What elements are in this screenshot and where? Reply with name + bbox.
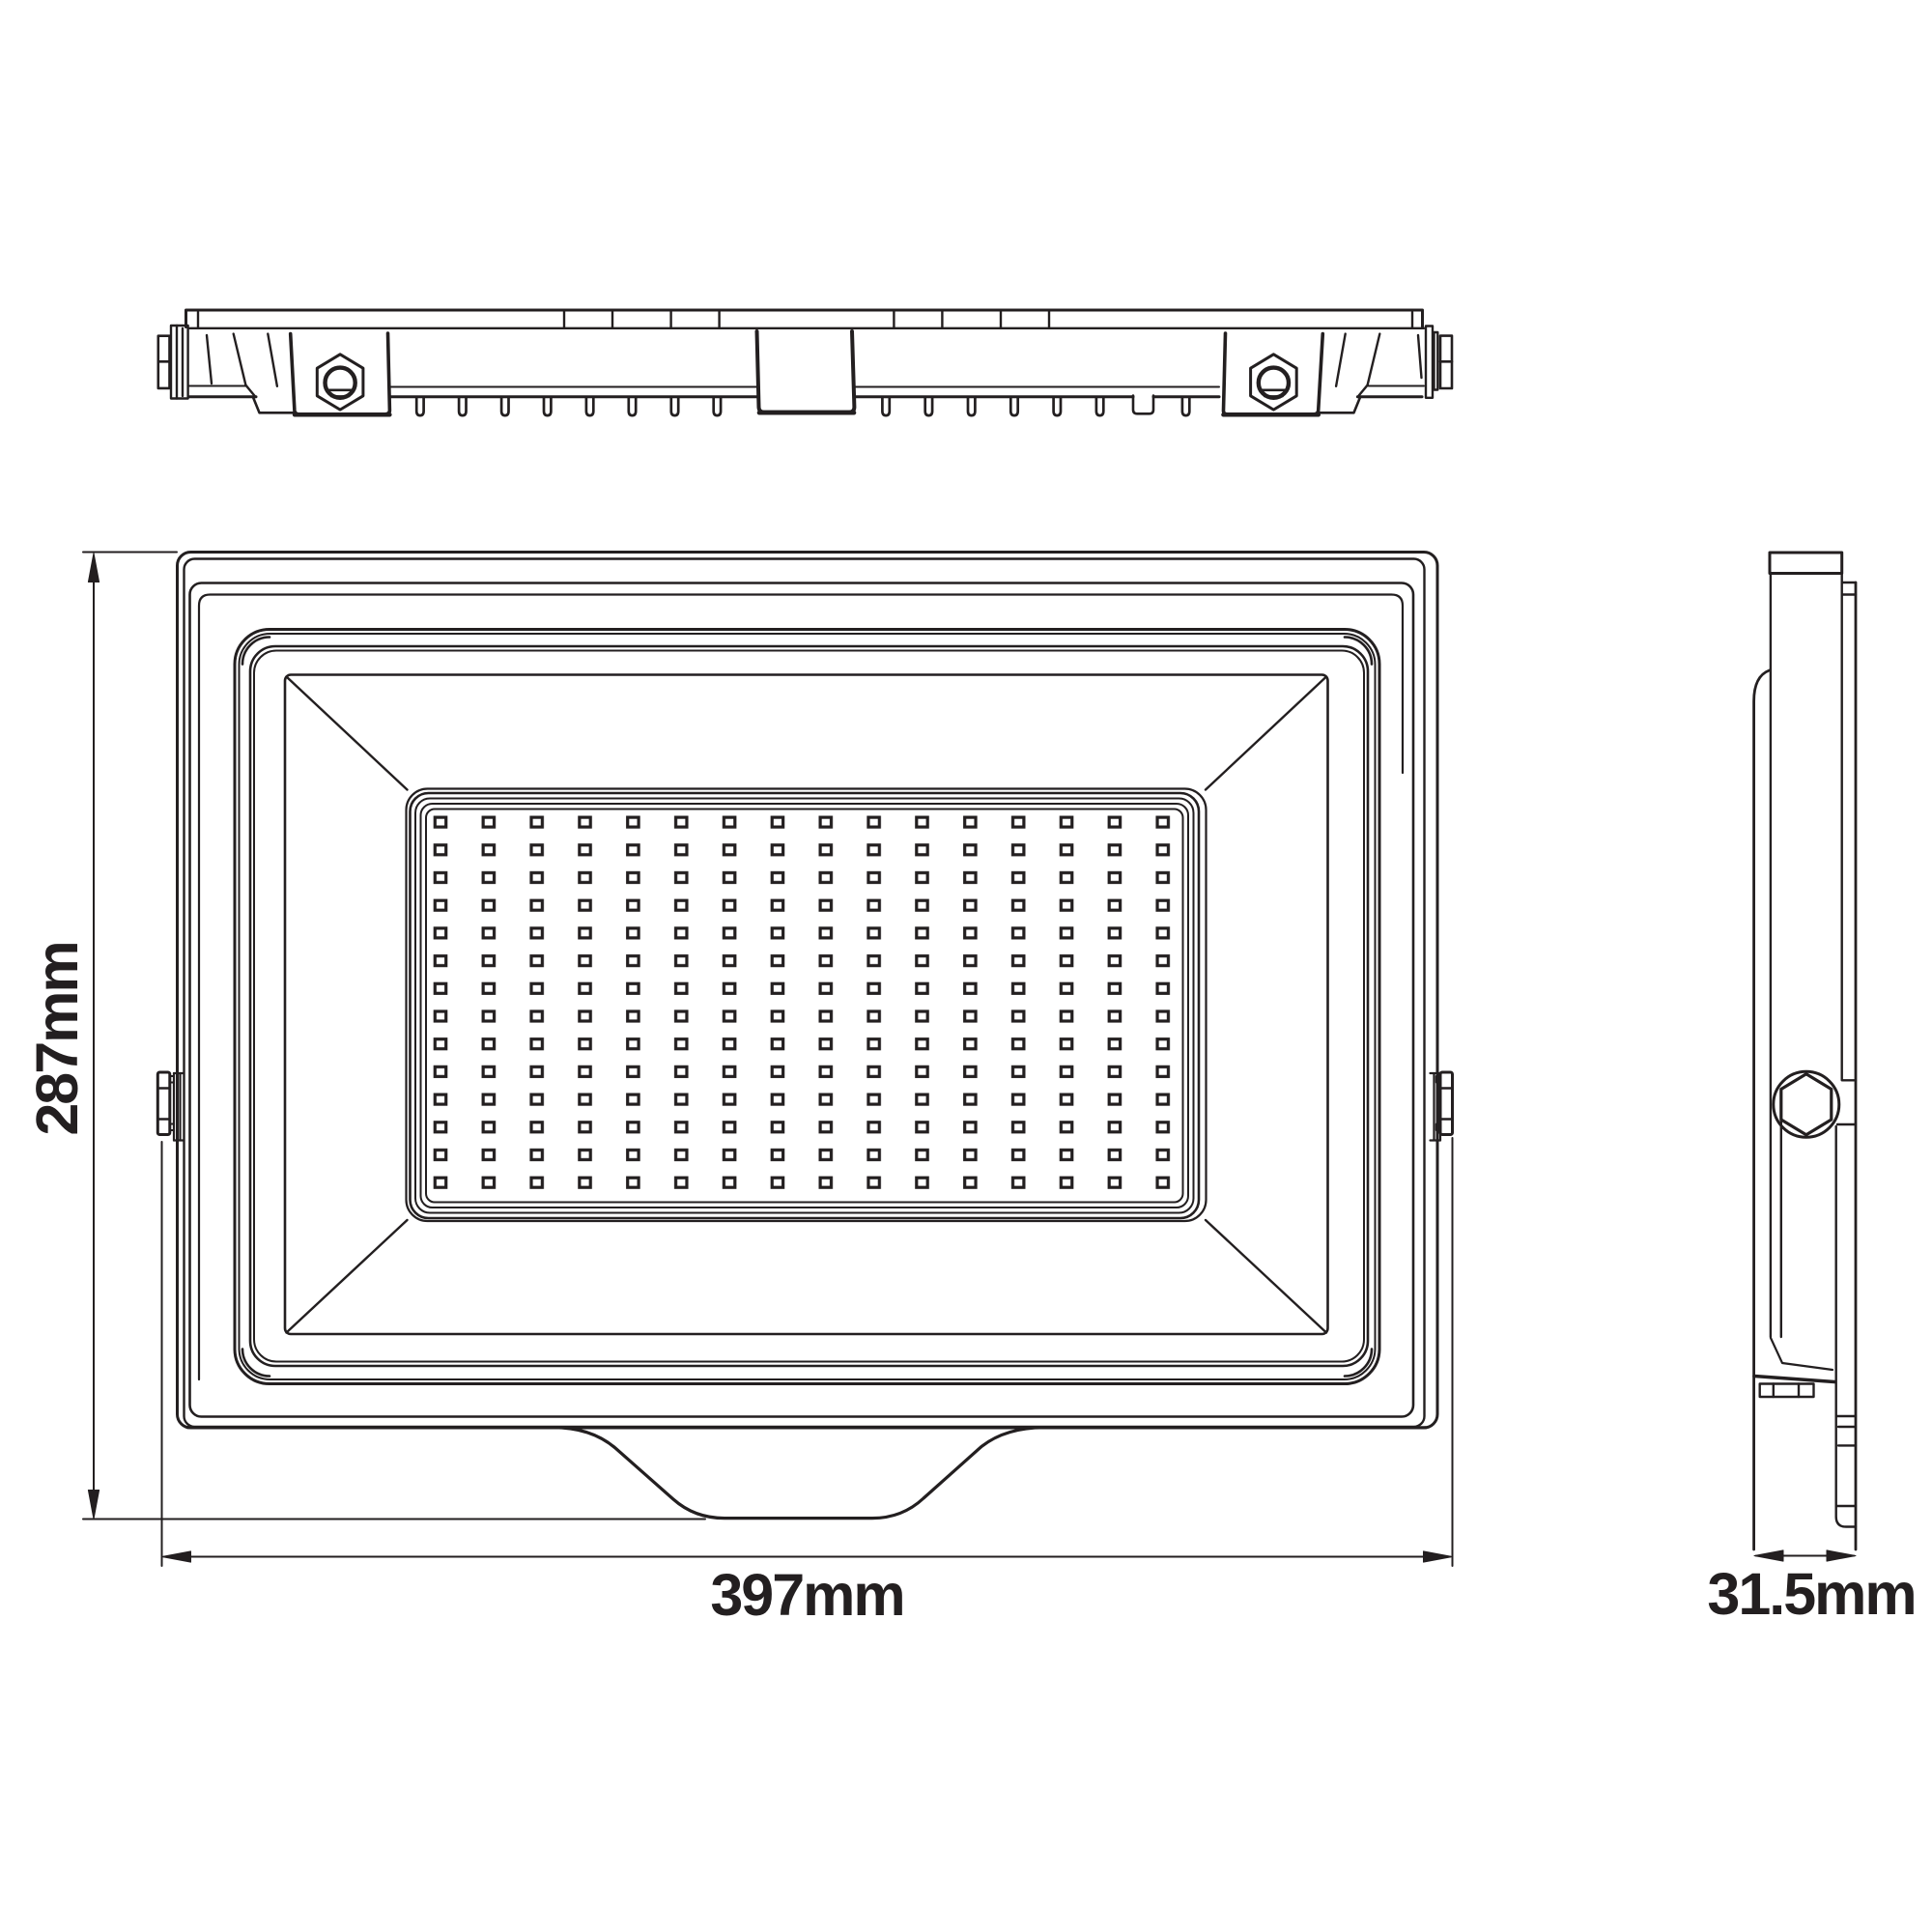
svg-text:397mm: 397mm bbox=[710, 1562, 903, 1628]
svg-text:31.5mm: 31.5mm bbox=[1707, 1561, 1915, 1627]
svg-text:287mm: 287mm bbox=[24, 942, 90, 1135]
